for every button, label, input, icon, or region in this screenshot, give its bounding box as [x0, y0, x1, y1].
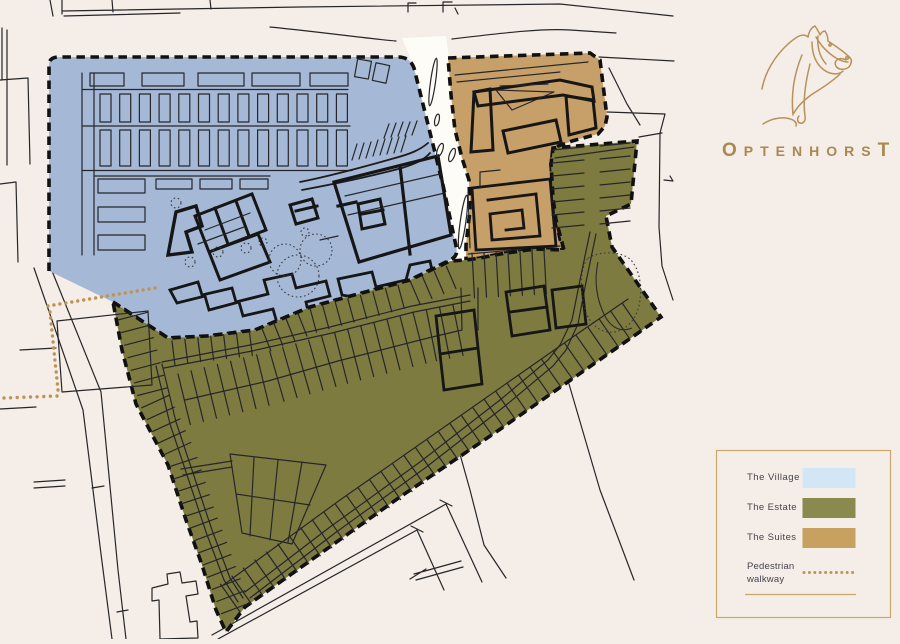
- svg-text:The Village: The Village: [747, 472, 800, 483]
- svg-text:The Suites: The Suites: [747, 532, 796, 543]
- svg-text:walkway: walkway: [746, 574, 784, 585]
- svg-text:The Estate: The Estate: [747, 502, 797, 513]
- svg-text:Pedestrian: Pedestrian: [747, 561, 794, 572]
- svg-text:OPTENHORST: OPTENHORST: [722, 140, 896, 161]
